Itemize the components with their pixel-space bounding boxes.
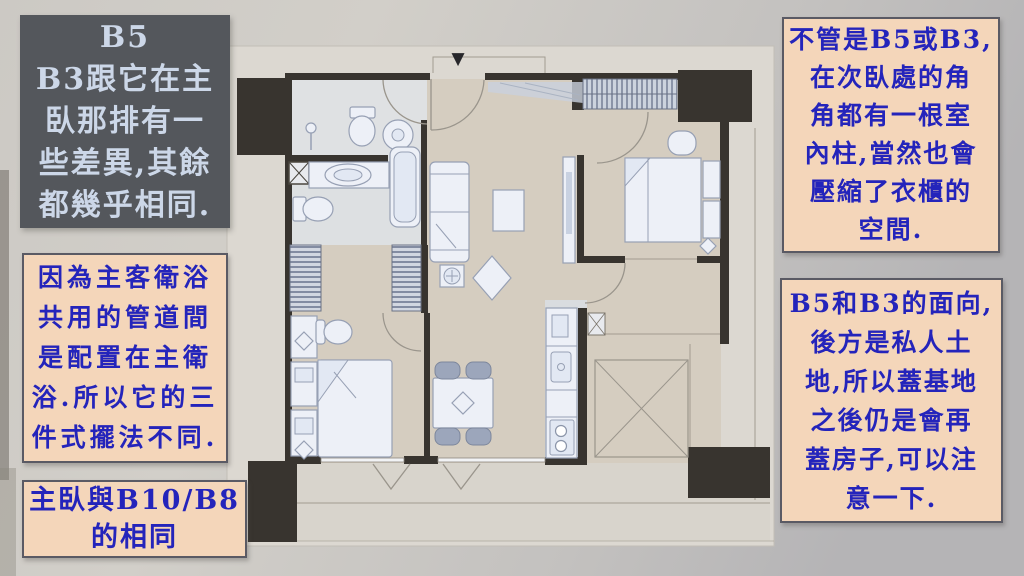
tv-icon (566, 172, 572, 234)
note-bathroom-layout: 因為主客衛浴 共用的管道間 是配置在主衛 浴.所以它的三 件式擺法不同. (22, 253, 228, 463)
dining-table-icon (433, 378, 493, 428)
note-unit-difference: B5 B3跟它在主 臥那排有一 些差異,其餘 都幾乎相同. (20, 15, 230, 228)
coffee-table-icon (493, 190, 524, 231)
headboard-cushion (668, 131, 696, 155)
nightstand-icon (703, 161, 720, 198)
column-top-right (678, 70, 752, 122)
entrance-arrow-icon: ▼ (451, 49, 465, 69)
column-top-left (237, 78, 288, 155)
column-bottom-left (248, 461, 297, 542)
chair-icon (435, 362, 460, 379)
sink-icon (551, 352, 571, 382)
shower-icon (306, 123, 316, 133)
chair-icon (466, 428, 491, 445)
note-indoor-column: 不管是B5或B3, 在次臥處的角 角都有一根室 內柱,當然也會 壓縮了衣櫃的 空… (782, 17, 1000, 253)
note-facing-land: B5和B3的面向, 後方是私人土 地,所以蓋基地 之後仍是會再 蓋房子,可以注 … (780, 278, 1003, 523)
appliance-icon (552, 315, 568, 337)
nightstand-icon (703, 201, 720, 238)
column-bottom-right (688, 447, 770, 498)
note-master-bedroom: 主臥與B10/B8 的相同 (22, 480, 247, 558)
slide: { "colors": { "photo_bg": "#c9c6c1", "pl… (0, 0, 1024, 576)
wardrobe-left (290, 245, 321, 311)
pipe-duct (289, 162, 309, 184)
chair-icon (435, 428, 460, 445)
wardrobe-right (392, 245, 421, 311)
photo-edge-shadow (0, 170, 9, 480)
chair-icon (466, 362, 491, 379)
